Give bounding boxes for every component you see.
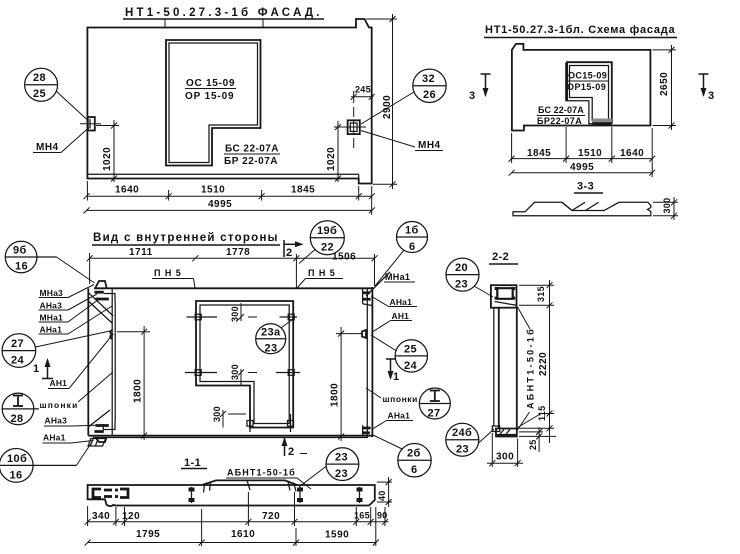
svg-text:300: 300 — [662, 198, 672, 214]
svg-text:22: 22 — [321, 242, 334, 254]
svg-text:1640: 1640 — [115, 185, 139, 196]
svg-text:1510: 1510 — [201, 185, 225, 196]
svg-text:23а: 23а — [261, 327, 281, 339]
svg-text:шпонки: шпонки — [383, 394, 418, 404]
svg-text:1020: 1020 — [102, 147, 113, 171]
svg-text:1778: 1778 — [226, 247, 250, 258]
svg-text:1640: 1640 — [620, 148, 644, 159]
svg-text:1795: 1795 — [136, 529, 160, 540]
svg-text:28: 28 — [11, 413, 24, 425]
svg-text:2220: 2220 — [538, 352, 549, 376]
svg-text:23: 23 — [335, 452, 348, 464]
svg-text:АНа1: АНа1 — [43, 433, 66, 443]
svg-text:БР 22-07А: БР 22-07А — [224, 156, 278, 167]
svg-text:23: 23 — [455, 279, 468, 291]
svg-text:245: 245 — [355, 85, 371, 95]
svg-text:24: 24 — [404, 360, 418, 372]
svg-text:3: 3 — [469, 90, 476, 102]
svg-text:1800: 1800 — [330, 383, 341, 407]
svg-text:ПН5: ПН5 — [154, 268, 181, 278]
svg-text:115: 115 — [537, 406, 547, 421]
svg-text:МН4: МН4 — [36, 142, 59, 153]
svg-text:МН4: МН4 — [418, 140, 441, 151]
svg-text:25: 25 — [404, 344, 417, 356]
svg-text:19б: 19б — [317, 225, 337, 237]
svg-text:1845: 1845 — [527, 148, 551, 159]
svg-text:МНа1: МНа1 — [40, 313, 64, 323]
svg-text:БС 22-07А: БС 22-07А — [538, 105, 584, 115]
svg-text:ОС 15-09: ОС 15-09 — [186, 78, 235, 89]
svg-text:1590: 1590 — [325, 530, 349, 541]
svg-text:1510: 1510 — [578, 148, 602, 159]
svg-text:3-3: 3-3 — [577, 181, 594, 193]
svg-text:АНа1: АНа1 — [388, 411, 411, 421]
svg-text:НТ1-50.27.3-1бл. Схема фасада: НТ1-50.27.3-1бл. Схема фасада — [485, 24, 675, 36]
svg-text:10б: 10б — [7, 453, 27, 465]
svg-text:27: 27 — [428, 408, 441, 420]
svg-text:9б: 9б — [13, 245, 27, 257]
svg-text:2б: 2б — [407, 448, 421, 460]
svg-text:2650: 2650 — [659, 72, 670, 96]
svg-text:ОР15-09: ОР15-09 — [567, 82, 606, 92]
svg-text:БР22-07А: БР22-07А — [537, 116, 582, 126]
svg-text:3: 3 — [708, 90, 715, 102]
svg-text:16: 16 — [15, 261, 28, 273]
svg-text:1020: 1020 — [326, 147, 337, 171]
svg-text:Вид с внутренней стороны: Вид с внутренней стороны — [93, 232, 279, 244]
svg-text:АНа1: АНа1 — [40, 325, 63, 335]
svg-text:4995: 4995 — [208, 199, 232, 210]
svg-text:МНа3: МНа3 — [40, 288, 64, 298]
svg-text:300: 300 — [496, 452, 514, 463]
svg-text:4995: 4995 — [570, 162, 594, 173]
svg-text:2: 2 — [286, 247, 293, 259]
svg-text:2: 2 — [288, 446, 295, 458]
svg-text:1845: 1845 — [291, 185, 315, 196]
svg-text:25: 25 — [33, 88, 46, 100]
svg-text:БС 22-07А: БС 22-07А — [225, 144, 279, 155]
svg-text:300: 300 — [230, 364, 240, 380]
svg-text:28: 28 — [33, 72, 46, 84]
svg-text:шпонки: шпонки — [40, 400, 78, 410]
svg-text:6: 6 — [411, 464, 418, 476]
svg-text:165: 165 — [354, 511, 370, 521]
svg-text:90: 90 — [377, 511, 388, 521]
svg-text:ПН5: ПН5 — [308, 268, 335, 278]
svg-text:1610: 1610 — [231, 529, 255, 540]
svg-text:32: 32 — [422, 73, 435, 85]
svg-text:1: 1 — [33, 363, 40, 375]
svg-text:1800: 1800 — [133, 379, 144, 403]
svg-text:АБНТ1-50-1б: АБНТ1-50-1б — [227, 468, 295, 478]
svg-text:2900: 2900 — [382, 95, 393, 119]
svg-text:ОС15-09: ОС15-09 — [568, 71, 607, 81]
svg-text:720: 720 — [262, 511, 280, 522]
svg-text:300: 300 — [212, 406, 222, 422]
svg-text:6: 6 — [409, 241, 416, 253]
svg-text:27: 27 — [11, 338, 24, 350]
svg-text:24б: 24б — [452, 427, 472, 439]
svg-text:23: 23 — [335, 468, 348, 480]
svg-text:16: 16 — [10, 470, 23, 482]
svg-text:АНа3: АНа3 — [40, 301, 63, 311]
svg-text:АН1: АН1 — [50, 378, 68, 388]
svg-text:1-1: 1-1 — [184, 457, 201, 469]
svg-text:23: 23 — [265, 343, 278, 355]
svg-text:1711: 1711 — [129, 247, 153, 258]
svg-text:120: 120 — [122, 511, 140, 522]
svg-text:АНа3: АНа3 — [45, 416, 68, 426]
svg-text:1: 1 — [393, 371, 400, 383]
svg-text:315: 315 — [536, 286, 546, 302]
svg-text:23: 23 — [456, 444, 469, 456]
svg-text:40: 40 — [377, 490, 387, 501]
svg-text:2-2: 2-2 — [492, 251, 509, 263]
svg-text:26: 26 — [423, 89, 436, 101]
svg-text:20: 20 — [455, 262, 468, 274]
svg-text:АНа1: АНа1 — [390, 297, 413, 307]
svg-text:24: 24 — [11, 355, 25, 367]
svg-text:25: 25 — [528, 439, 538, 450]
svg-text:1б: 1б — [405, 225, 419, 237]
svg-text:340: 340 — [92, 511, 110, 522]
svg-text:АН1: АН1 — [392, 311, 410, 321]
svg-text:ОР 15-09: ОР 15-09 — [185, 91, 234, 102]
